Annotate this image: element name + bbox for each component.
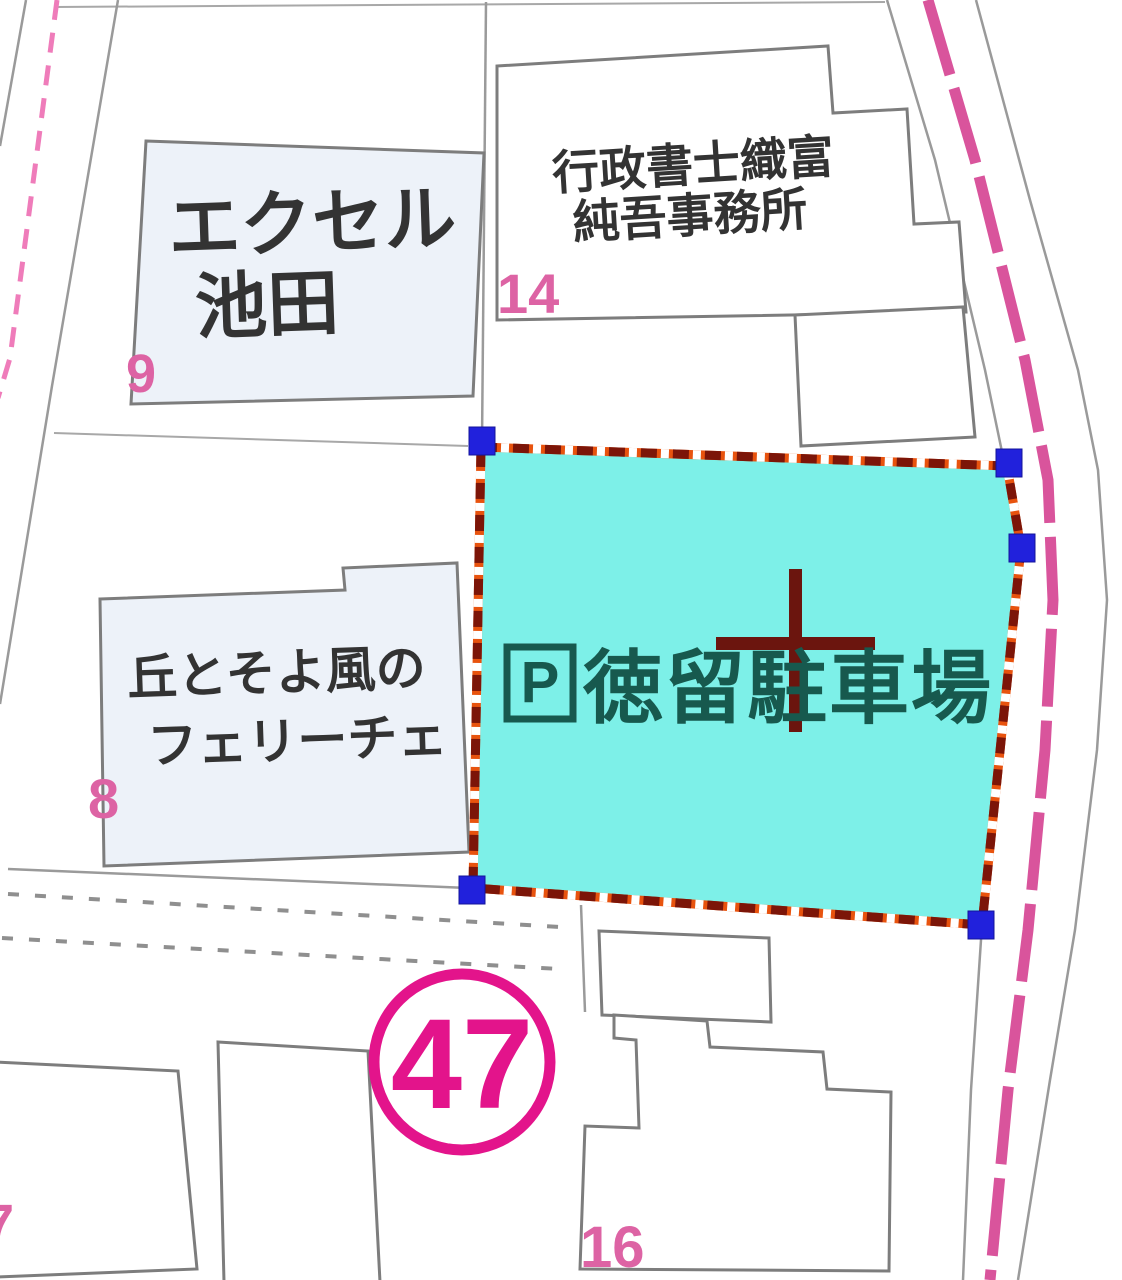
building-label-feliche-line2: フェリーチェ bbox=[147, 708, 449, 774]
building-label-excel-line2: 池田 bbox=[194, 264, 341, 349]
boundary-pink-dashed bbox=[0, 0, 57, 398]
selection-handle-right[interactable] bbox=[1009, 534, 1035, 562]
parcel-line-middle bbox=[54, 433, 468, 446]
route-marker: 47 bbox=[374, 974, 550, 1150]
map-canvas: エクセル 池田 9 行政書士織富 純吾事務所 14 丘とそよ風の フェリーチェ … bbox=[0, 0, 1122, 1280]
selection-handle-bottom-left[interactable] bbox=[459, 876, 485, 904]
selection-handle-top-left[interactable] bbox=[469, 427, 495, 455]
selection-handle-top-right[interactable] bbox=[996, 449, 1022, 477]
parcel-number-7: 7 bbox=[0, 1194, 14, 1254]
selected-parcel-group[interactable]: P 徳留駐車場 bbox=[459, 427, 1035, 939]
building-label-feliche-line1: 丘とそよ風の bbox=[126, 640, 426, 706]
building-label-excel-line1: エクセル bbox=[167, 179, 458, 269]
road-edge-left-short bbox=[0, 0, 26, 146]
parcel-line-vertical bbox=[482, 2, 486, 443]
map-viewport[interactable]: エクセル 池田 9 行政書士織富 純吾事務所 14 丘とそよ風の フェリーチェ … bbox=[0, 0, 1122, 1280]
building-small bbox=[599, 931, 771, 1022]
parking-icon-letter: P bbox=[521, 650, 560, 715]
building-mid bbox=[218, 1042, 380, 1280]
footpath-dashes-row2 bbox=[2, 938, 560, 969]
parcel-line-short bbox=[581, 905, 585, 1012]
parcel-number-8: 8 bbox=[88, 767, 119, 830]
road-edge-lower-left bbox=[8, 869, 468, 888]
building-7 bbox=[0, 1062, 197, 1277]
parcel-number-16: 16 bbox=[580, 1215, 645, 1280]
road-edge-top bbox=[55, 2, 885, 7]
building-annex bbox=[795, 307, 975, 446]
parcel-number-14: 14 bbox=[497, 262, 559, 325]
parking-name-label: 徳留駐車場 bbox=[582, 644, 993, 733]
selection-handle-bottom-right[interactable] bbox=[968, 911, 994, 939]
route-marker-number: 47 bbox=[391, 993, 533, 1136]
parcel-number-9: 9 bbox=[126, 344, 156, 404]
